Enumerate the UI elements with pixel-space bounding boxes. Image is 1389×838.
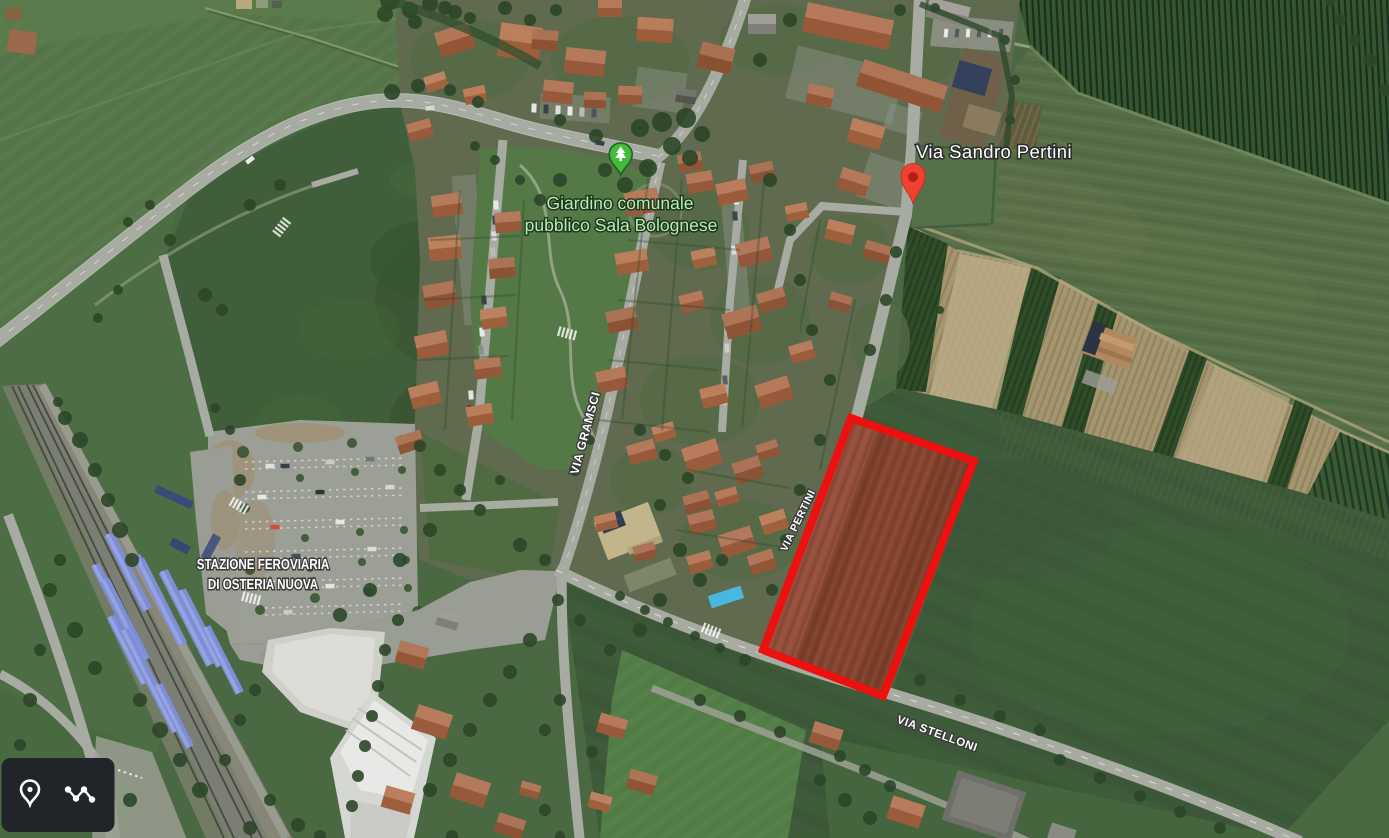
svg-text:Via Sandro Pertini: Via Sandro Pertini: [916, 141, 1072, 162]
svg-text:STAZIONE FEROVIARIA: STAZIONE FEROVIARIA: [197, 557, 330, 573]
svg-text:pubblico Sala Bolognese: pubblico Sala Bolognese: [525, 215, 718, 235]
svg-text:Giardino comunale: Giardino comunale: [547, 193, 694, 213]
svg-text:DI OSTERIA NUOVA: DI OSTERIA NUOVA: [208, 577, 319, 593]
